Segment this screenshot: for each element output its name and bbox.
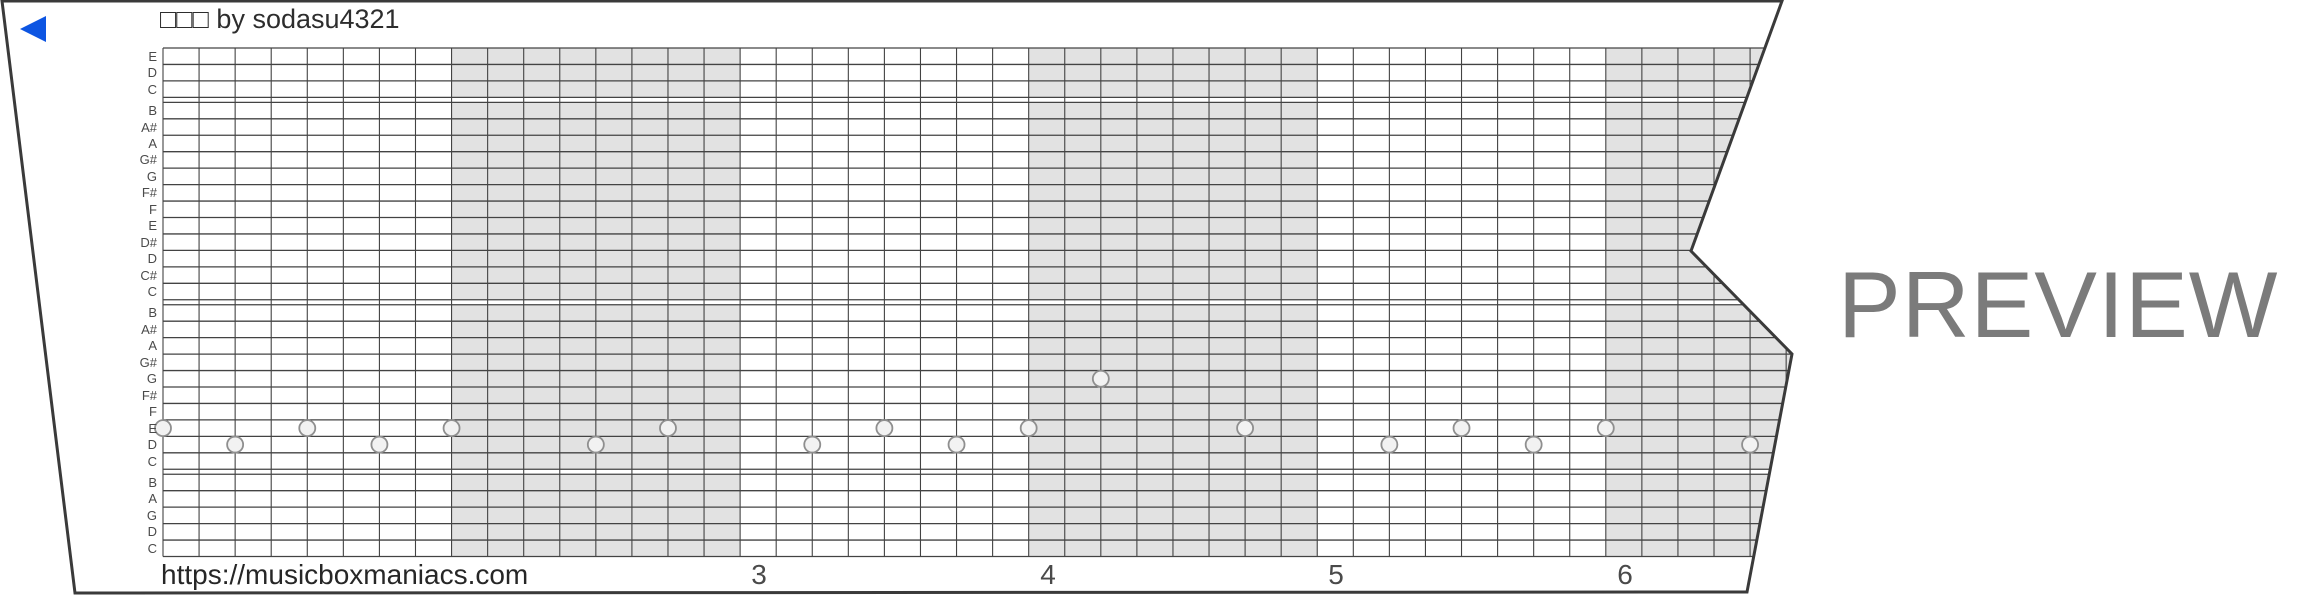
note-label: G: [95, 170, 157, 183]
note-dot[interactable]: [876, 420, 892, 436]
note-label: D#: [95, 236, 157, 249]
note-dot[interactable]: [1093, 371, 1109, 387]
note-dot[interactable]: [588, 437, 604, 453]
note-dot[interactable]: [660, 420, 676, 436]
note-label: C: [95, 455, 157, 468]
note-label: F: [95, 405, 157, 418]
note-dot[interactable]: [1381, 437, 1397, 453]
measure-number: 3: [751, 559, 767, 591]
note-label: B: [95, 104, 157, 117]
note-label: C: [95, 285, 157, 298]
note-dot[interactable]: [299, 420, 315, 436]
note-label: C: [95, 83, 157, 96]
note-label: G#: [95, 153, 157, 166]
note-label: B: [95, 476, 157, 489]
note-label: G#: [95, 356, 157, 369]
note-label: A: [95, 492, 157, 505]
note-dot[interactable]: [1526, 437, 1542, 453]
note-label: A#: [95, 323, 157, 336]
play-arrow-icon[interactable]: [20, 16, 46, 42]
note-label: E: [95, 219, 157, 232]
note-dot[interactable]: [371, 437, 387, 453]
note-dot[interactable]: [155, 420, 171, 436]
note-label: D: [95, 66, 157, 79]
note-label: F#: [95, 186, 157, 199]
note-dot[interactable]: [227, 437, 243, 453]
note-label: E: [95, 422, 157, 435]
note-label: G: [95, 509, 157, 522]
measure-number: 6: [1617, 559, 1633, 591]
paper-outline: [2, 1, 1792, 593]
note-dot[interactable]: [1742, 437, 1758, 453]
measure-number: 5: [1328, 559, 1344, 591]
note-dot[interactable]: [444, 420, 460, 436]
preview-watermark: PREVIEW: [1838, 258, 2279, 352]
note-dot[interactable]: [804, 437, 820, 453]
note-label: G: [95, 372, 157, 385]
note-label: F#: [95, 389, 157, 402]
note-label: B: [95, 306, 157, 319]
note-dot[interactable]: [1237, 420, 1253, 436]
note-dot[interactable]: [1598, 420, 1614, 436]
strip-title: □□□ by sodasu4321: [160, 3, 400, 35]
note-label: A: [95, 137, 157, 150]
note-label: F: [95, 203, 157, 216]
note-label: D: [95, 252, 157, 265]
note-label: A#: [95, 121, 157, 134]
footer-url: https://musicboxmaniacs.com: [161, 558, 528, 592]
note-label: E: [95, 50, 157, 63]
music-strip-preview: □□□ by sodasu4321 EDCBA#AG#GF#FED#DC#CBA…: [0, 0, 2310, 597]
note-label: C: [95, 542, 157, 555]
note-label: A: [95, 339, 157, 352]
measure-number: 4: [1040, 559, 1056, 591]
note-dot[interactable]: [949, 437, 965, 453]
note-dot[interactable]: [1454, 420, 1470, 436]
note-label: D: [95, 525, 157, 538]
note-dot[interactable]: [1021, 420, 1037, 436]
note-label: D: [95, 438, 157, 451]
note-label: C#: [95, 269, 157, 282]
